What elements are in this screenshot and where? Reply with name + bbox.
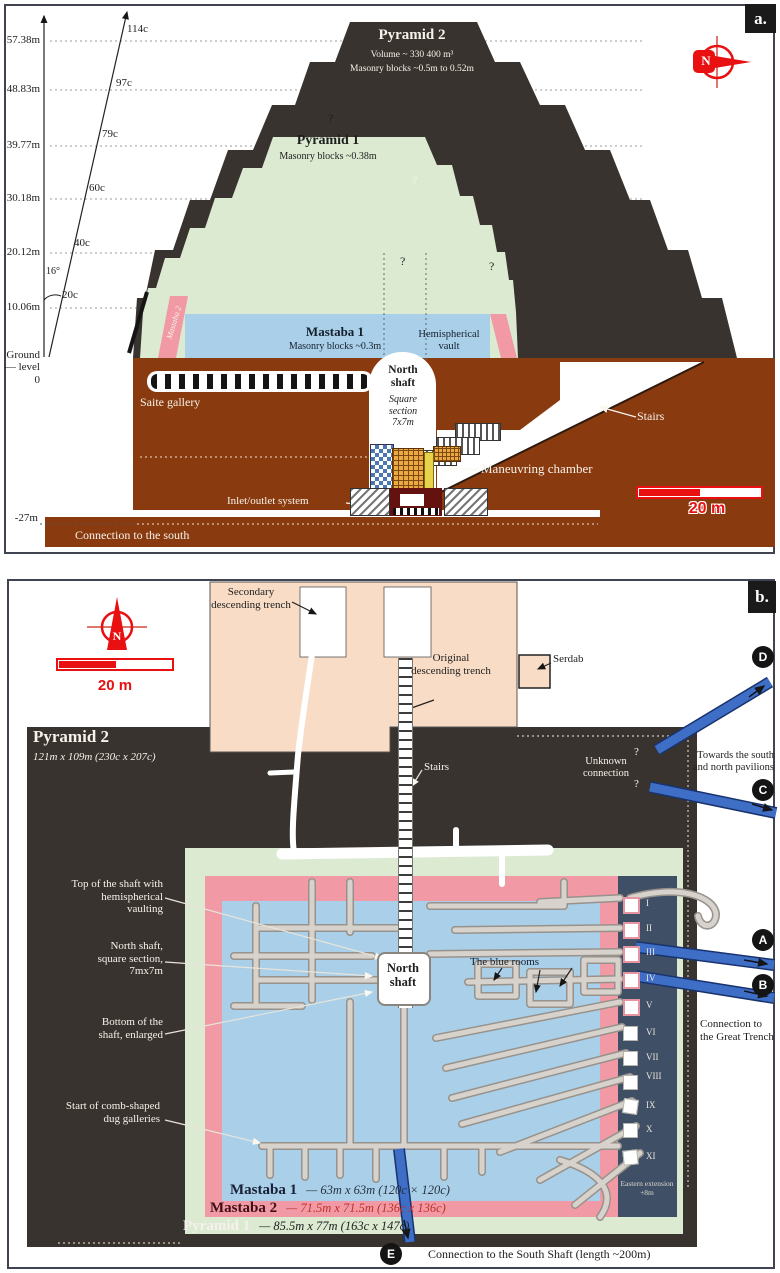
hatched-block-right <box>444 488 488 516</box>
gallery-square <box>623 1123 638 1138</box>
legend-name: Pyramid 1 <box>183 1218 250 1234</box>
bottom-shaft-label: Bottom of the shaft, enlarged <box>83 1016 163 1041</box>
gallery-numeral: XI <box>646 1152 663 1162</box>
legend-dims: — 63m x 63m (120c × 120c) <box>306 1183 450 1197</box>
great-trench-label: Connection to the Great Trench <box>700 1018 778 1043</box>
north-shaft-box: North shaft <box>377 952 431 1006</box>
vault-label: Hemispherical vault <box>408 329 490 353</box>
pyramid1-blocks: Masonry blocks ~0.38m <box>268 151 388 163</box>
secondary-trench-label: Secondary descending trench <box>210 586 292 611</box>
elevation-label: 10.06m <box>2 301 40 314</box>
inlet-label: Inlet/outlet system <box>227 495 309 508</box>
original-trench-label: Original descending trench <box>408 652 494 677</box>
legend-name: Mastaba 1 <box>230 1182 297 1198</box>
course-label: 20c <box>62 289 78 302</box>
inlet-chamber <box>390 488 442 516</box>
plug-strip <box>424 452 434 492</box>
question-mark: ? <box>400 255 405 269</box>
south-shaft-label: Connection to the South Shaft (length ~2… <box>428 1248 650 1262</box>
legend-dims: — 85.5m x 77m (163c x 147c) <box>259 1219 409 1233</box>
gallery-numeral: IX <box>646 1101 663 1111</box>
maneuvring-label: Maneuvring chamber <box>481 462 593 477</box>
marker-D: D <box>752 646 774 668</box>
pyramid1-title: Pyramid 1 <box>268 133 388 149</box>
course-label: 60c <box>89 182 105 195</box>
pyramid2-blocks: Masonry blocks ~0.5m to 0.52m <box>332 64 492 75</box>
compass-n-label: N <box>698 54 714 69</box>
top-shaft-label: Top of the shaft with hemispherical vaul… <box>71 878 163 916</box>
figure-page: a. N 57.38m 48.83m 39.77m 30.18m 20.12m … <box>0 0 780 1273</box>
gallery-numeral: VIII <box>646 1072 663 1082</box>
course-label: 97c <box>116 77 132 90</box>
pyramid2-plan-title: Pyramid 2 <box>33 727 109 747</box>
gallery-numeral: VII <box>646 1053 663 1063</box>
serdab-square <box>519 655 550 688</box>
eastern-extension-label: Eastern extension +8m <box>618 1180 676 1197</box>
gallery-square <box>623 1075 638 1090</box>
ground-label: Ground <box>0 349 40 362</box>
stairs-label-b: Stairs <box>424 761 449 774</box>
ground-label: — level <box>0 361 40 374</box>
course-label: 114c <box>127 23 148 36</box>
compass-n-label: N <box>109 630 125 644</box>
panel-b-tag-box: b. <box>748 581 776 613</box>
towards-pavilions-label: Towards the south and north pavilions <box>688 750 774 774</box>
legend-mastaba1: Mastaba 1 — 63m x 63m (120c × 120c) <box>230 1181 450 1199</box>
legend-pyramid1: Pyramid 1 — 85.5m x 77m (163c x 147c) <box>183 1217 409 1235</box>
gallery-numeral: IV <box>646 974 663 984</box>
trench-pit-2 <box>384 587 431 657</box>
gallery-numeral: II <box>646 924 663 934</box>
gallery-numeral: I <box>646 899 663 909</box>
panel-a-tag-box: a. <box>745 4 776 33</box>
marker-E: E <box>380 1243 402 1265</box>
scalebar-a-label: 20 m <box>672 500 742 518</box>
stairs-label-a: Stairs <box>637 410 664 424</box>
question-mark: ? <box>634 746 639 759</box>
saite-gallery-bars <box>151 374 369 389</box>
gallery-square <box>622 1149 638 1165</box>
masonry-grid-block <box>392 448 424 492</box>
elevation-label: 30.18m <box>2 192 40 205</box>
scalebar-b <box>57 659 173 670</box>
north-shaft-box-label: North shaft <box>381 961 425 990</box>
question-mark: ? <box>634 778 639 791</box>
blue-rooms-label: The blue rooms <box>470 956 580 969</box>
comb-galleries-label: Start of comb-shaped dug galleries <box>60 1100 160 1125</box>
masonry-grid-block-2 <box>433 446 461 462</box>
south-connection-label: Connection to the south <box>75 529 189 543</box>
pyramid2-plan-dims: 121m x 109m (230c x 207c) <box>33 751 156 764</box>
pyramid2-volume: Volume ~ 330 400 m³ <box>342 50 482 61</box>
question-mark: ? <box>489 260 494 274</box>
saite-gallery-label: Saite gallery <box>140 396 200 410</box>
north-shaft-sub: Square section 7x7m <box>377 394 429 429</box>
question-mark: ? <box>328 112 333 126</box>
north-shaft-title: North shaft <box>377 364 429 390</box>
scalebar-b-label: 20 m <box>85 677 145 694</box>
ground-label: 0 <box>0 374 40 387</box>
elevation-label: 39.77m <box>2 139 40 152</box>
marker-C: C <box>752 779 774 801</box>
gallery-numeral: X <box>646 1125 663 1135</box>
depth-label: -27m <box>6 512 38 525</box>
gallery-square <box>623 1026 638 1041</box>
elevation-label: 48.83m <box>2 83 40 96</box>
gallery-square <box>623 972 640 989</box>
trench-pit-1 <box>300 587 346 657</box>
gallery-square <box>623 1051 638 1066</box>
elevation-label: 20.12m <box>2 246 40 259</box>
gallery-square <box>623 999 640 1016</box>
course-label: 79c <box>102 128 118 141</box>
saite-gallery-band <box>147 371 373 392</box>
gallery-square <box>622 1098 639 1115</box>
gallery-numeral: V <box>646 1001 663 1011</box>
gallery-square <box>623 897 640 914</box>
gallery-numeral: III <box>646 948 663 958</box>
pyramid2-title: Pyramid 2 <box>347 27 477 44</box>
scalebar-a <box>637 487 762 498</box>
checkered-block <box>370 444 394 492</box>
marker-B: B <box>752 974 774 996</box>
legend-dims: — 71.5m x 71.5m (136c x 136c) <box>286 1201 446 1215</box>
mastaba1-title: Mastaba 1 <box>280 325 390 340</box>
legend-mastaba2: Mastaba 2 — 71.5m x 71.5m (136c x 136c) <box>210 1199 446 1217</box>
gallery-numeral: VI <box>646 1028 663 1038</box>
course-label: 40c <box>74 237 90 250</box>
serdab-label: Serdab <box>553 653 584 666</box>
unknown-connection-label: Unknown connection <box>570 756 642 780</box>
marker-A: A <box>752 929 774 951</box>
question-mark: ? <box>412 174 417 188</box>
elevation-label: 57.38m <box>2 34 40 47</box>
north-shaft-label: North shaft, square section, 7mx7m <box>83 940 163 978</box>
inlet-chamber-grate <box>393 508 439 515</box>
gallery-square <box>623 946 640 963</box>
mastaba1-blocks: Masonry blocks ~0.3m <box>270 341 400 353</box>
gallery-square <box>623 922 640 939</box>
angle-label: 16° <box>46 266 60 278</box>
water-channel <box>47 510 600 517</box>
legend-name: Mastaba 2 <box>210 1200 277 1216</box>
inlet-chamber-cavity <box>400 494 424 506</box>
hatched-block-left <box>350 488 390 516</box>
